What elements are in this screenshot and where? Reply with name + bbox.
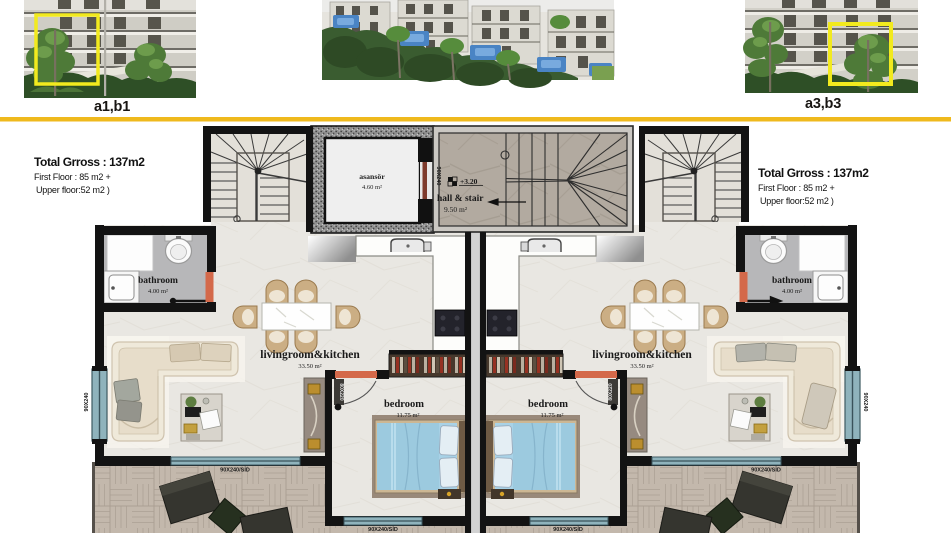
svg-text:4.00 m²: 4.00 m² <box>148 288 168 295</box>
svg-text:4.60 m²: 4.60 m² <box>362 184 382 191</box>
svg-text:80X220: 80X220 <box>338 383 344 400</box>
svg-text:90X240/SİD: 90X240/SİD <box>553 526 583 533</box>
svg-text:asansör: asansör <box>359 172 385 181</box>
svg-text:11.75 m²: 11.75 m² <box>540 412 563 419</box>
svg-text:hall & stair: hall & stair <box>437 194 484 204</box>
svg-text:livingroom&kitchen: livingroom&kitchen <box>592 349 692 361</box>
svg-text:90X240/SİD: 90X240/SİD <box>220 467 250 474</box>
svg-text:bedroom: bedroom <box>528 399 568 410</box>
svg-text:4.00 m²: 4.00 m² <box>782 288 802 295</box>
svg-text:90X240: 90X240 <box>84 393 90 412</box>
svg-text:livingroom&kitchen: livingroom&kitchen <box>260 349 360 361</box>
svg-text:80X220: 80X220 <box>608 383 614 400</box>
svg-text:90X240/SİD: 90X240/SİD <box>368 526 398 533</box>
svg-text:bedroom: bedroom <box>384 399 424 410</box>
svg-text:bathroom: bathroom <box>138 276 178 286</box>
svg-text:bathroom: bathroom <box>772 276 812 286</box>
svg-text:9.50 m²: 9.50 m² <box>444 205 468 214</box>
svg-text:+3.20: +3.20 <box>460 177 478 186</box>
svg-text:11.75 m²: 11.75 m² <box>396 412 419 419</box>
svg-text:90X240: 90X240 <box>435 167 441 186</box>
svg-text:33.50 m²: 33.50 m² <box>298 363 321 370</box>
svg-text:90X240/SİD: 90X240/SİD <box>751 467 781 474</box>
svg-text:90X240: 90X240 <box>862 393 868 412</box>
svg-text:33.50 m²: 33.50 m² <box>630 363 653 370</box>
